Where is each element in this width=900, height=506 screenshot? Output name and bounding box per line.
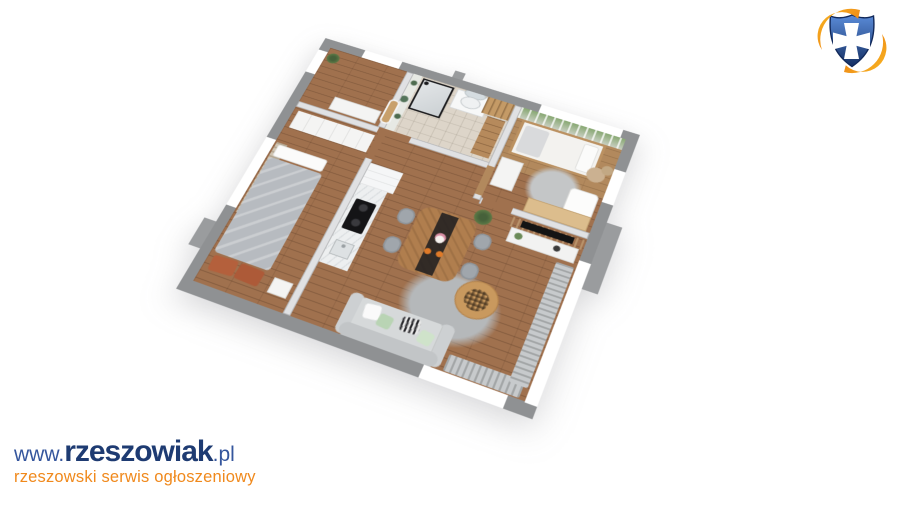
watermark: www.rzeszowiak.pl rzeszowski serwis ogło… xyxy=(14,437,256,486)
screenshot-canvas: www.rzeszowiak.pl rzeszowski serwis ogło… xyxy=(0,0,900,506)
site-url: www.rzeszowiak.pl xyxy=(14,437,256,467)
rzeszowiak-logo xyxy=(814,4,890,80)
url-prefix: www. xyxy=(14,444,64,465)
floor-plan-3d xyxy=(176,38,640,419)
url-tld: .pl xyxy=(213,444,235,465)
shield-icon xyxy=(830,15,874,67)
site-tagline: rzeszowski serwis ogłoszeniowy xyxy=(14,469,256,486)
brand-name: rzeszowiak xyxy=(64,437,212,467)
